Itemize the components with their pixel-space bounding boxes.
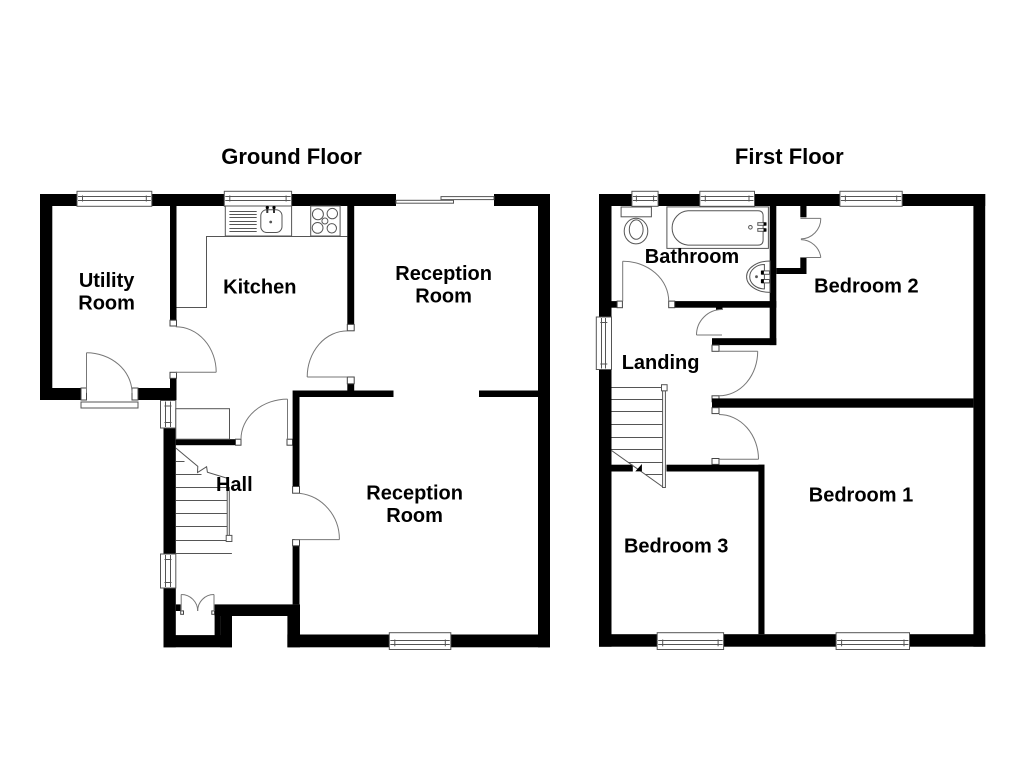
svg-text:Bathroom: Bathroom — [645, 246, 739, 268]
svg-text:Room: Room — [415, 285, 472, 307]
svg-text:Hall: Hall — [216, 474, 253, 496]
svg-text:Utility: Utility — [79, 270, 135, 292]
svg-text:Room: Room — [78, 293, 135, 315]
svg-text:Reception: Reception — [366, 483, 463, 505]
svg-text:Bedroom 1: Bedroom 1 — [809, 485, 913, 507]
svg-text:Bedroom 3: Bedroom 3 — [624, 536, 728, 558]
svg-text:Ground Floor: Ground Floor — [221, 144, 362, 169]
svg-text:Room: Room — [386, 505, 443, 527]
svg-text:First Floor: First Floor — [735, 144, 844, 169]
svg-text:Landing: Landing — [622, 352, 700, 374]
svg-text:Bedroom 2: Bedroom 2 — [814, 276, 918, 298]
svg-text:Kitchen: Kitchen — [223, 277, 296, 299]
svg-text:Reception: Reception — [395, 263, 492, 285]
